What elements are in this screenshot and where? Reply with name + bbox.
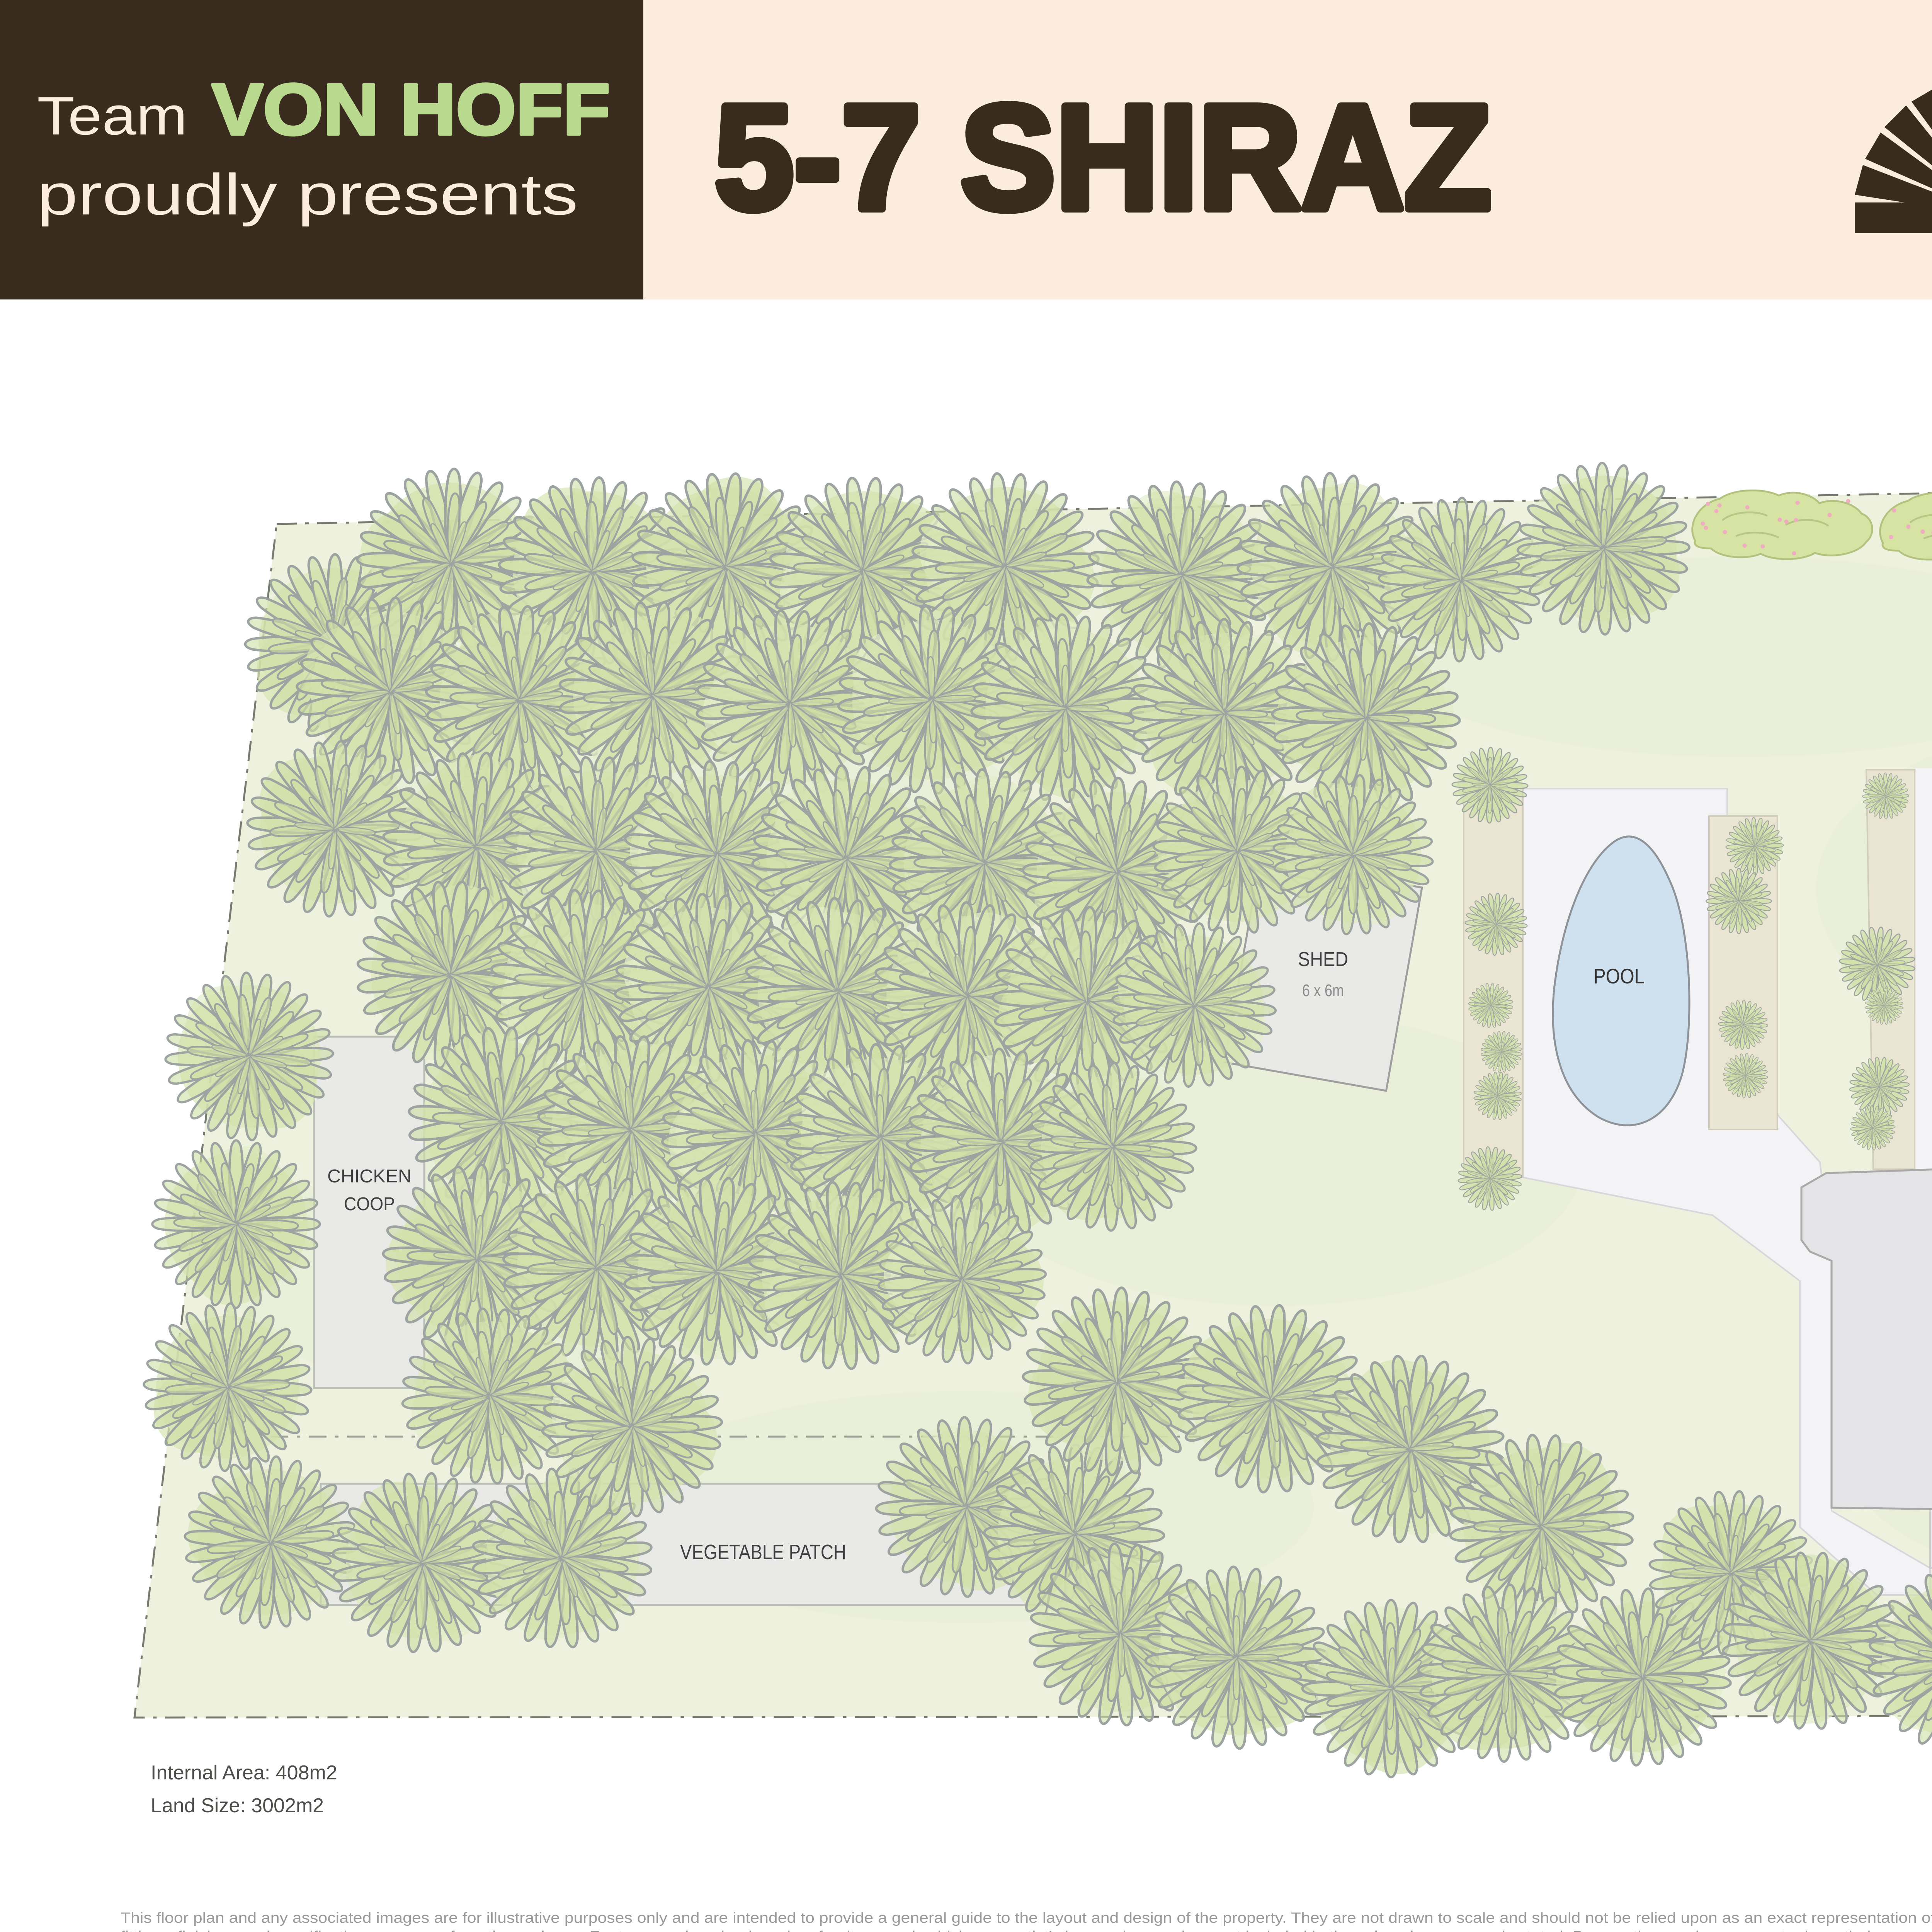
svg-text:5-7 SHIRAZ: 5-7 SHIRAZ: [714, 74, 1492, 240]
svg-text:COOP: COOP: [344, 1194, 395, 1214]
svg-text:6 x 6m: 6 x 6m: [1302, 981, 1344, 1000]
svg-text:fittings, finishes, and specif: fittings, finishes, and specifications m…: [121, 1929, 1932, 1932]
svg-text:VEGETABLE PATCH: VEGETABLE PATCH: [680, 1541, 846, 1564]
svg-text:Internal Area: 408m2: Internal Area: 408m2: [151, 1762, 337, 1784]
svg-text:POOL: POOL: [1594, 964, 1645, 988]
svg-text:Land Size: 3002m2: Land Size: 3002m2: [151, 1794, 324, 1817]
svg-text:This floor plan and any associ: This floor plan and any associated image…: [121, 1910, 1932, 1926]
svg-text:proudly presents: proudly presents: [37, 162, 578, 227]
svg-text:CHICKEN: CHICKEN: [327, 1166, 412, 1187]
svg-text:SHED: SHED: [1298, 948, 1348, 971]
